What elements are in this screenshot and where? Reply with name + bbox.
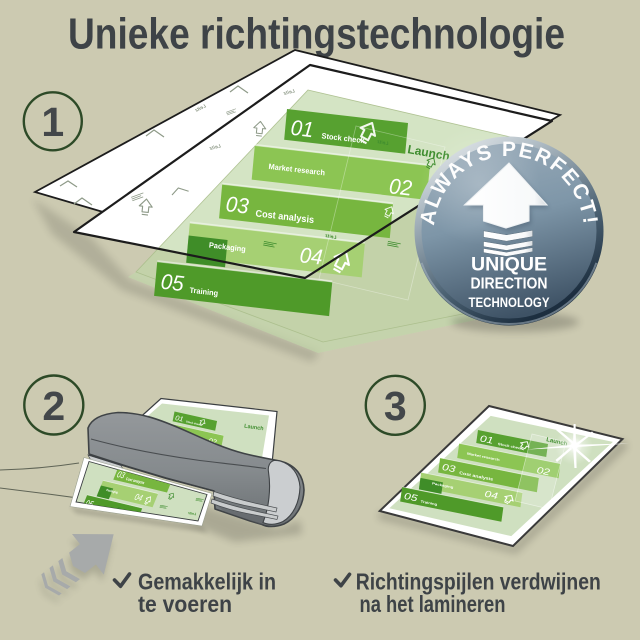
svg-text:1: 1 xyxy=(41,99,64,145)
svg-text:03: 03 xyxy=(225,193,250,219)
svg-text:05: 05 xyxy=(160,270,185,296)
svg-text:DIRECTION: DIRECTION xyxy=(471,276,548,293)
svg-text:na het lamineren: na het lamineren xyxy=(360,591,506,617)
svg-text:te voeren: te voeren xyxy=(138,591,232,617)
svg-text:04: 04 xyxy=(299,244,324,270)
svg-text:UNIQUE: UNIQUE xyxy=(471,255,547,276)
svg-text:3: 3 xyxy=(384,383,407,429)
svg-text:01: 01 xyxy=(290,116,315,142)
svg-text:02: 02 xyxy=(388,175,413,201)
svg-text:Unieke richtingstechnologie: Unieke richtingstechnologie xyxy=(68,10,565,59)
svg-text:TECHNOLOGY: TECHNOLOGY xyxy=(469,294,551,310)
svg-text:2: 2 xyxy=(42,383,65,429)
